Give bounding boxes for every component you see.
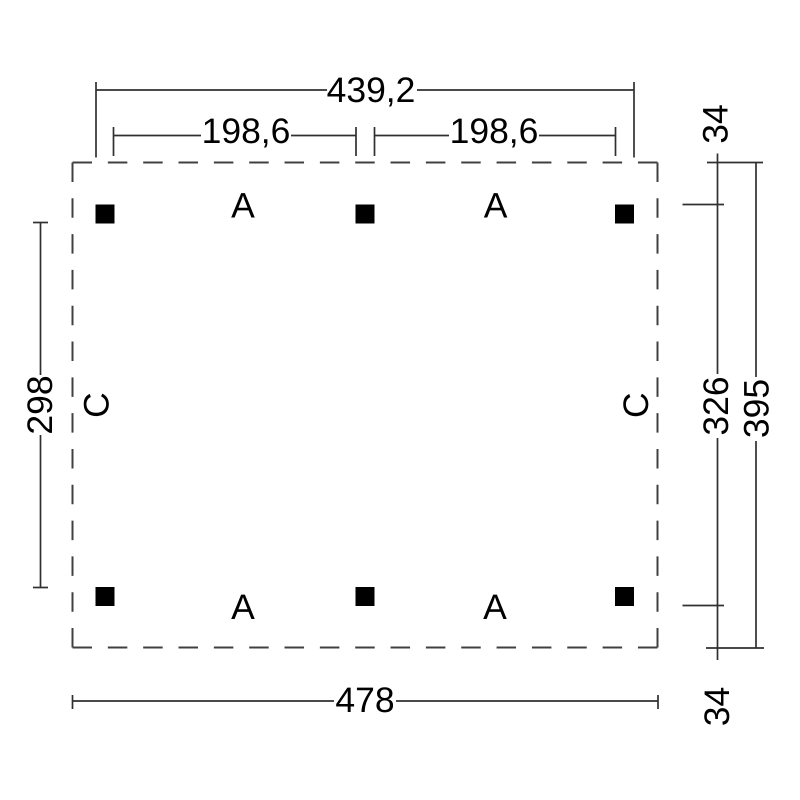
svg-text:326: 326 — [696, 376, 736, 435]
svg-text:198,6: 198,6 — [450, 111, 539, 151]
svg-text:34: 34 — [697, 687, 737, 727]
svg-text:A: A — [483, 587, 507, 627]
svg-text:34: 34 — [696, 104, 736, 144]
svg-text:A: A — [231, 185, 255, 225]
svg-text:478: 478 — [335, 680, 394, 720]
svg-text:198,6: 198,6 — [202, 111, 291, 151]
svg-text:395: 395 — [737, 379, 777, 438]
svg-text:439,2: 439,2 — [327, 70, 416, 110]
svg-text:C: C — [77, 392, 117, 418]
svg-text:298: 298 — [20, 375, 60, 434]
svg-text:A: A — [231, 587, 255, 627]
svg-text:C: C — [616, 392, 656, 418]
svg-text:A: A — [484, 185, 508, 225]
